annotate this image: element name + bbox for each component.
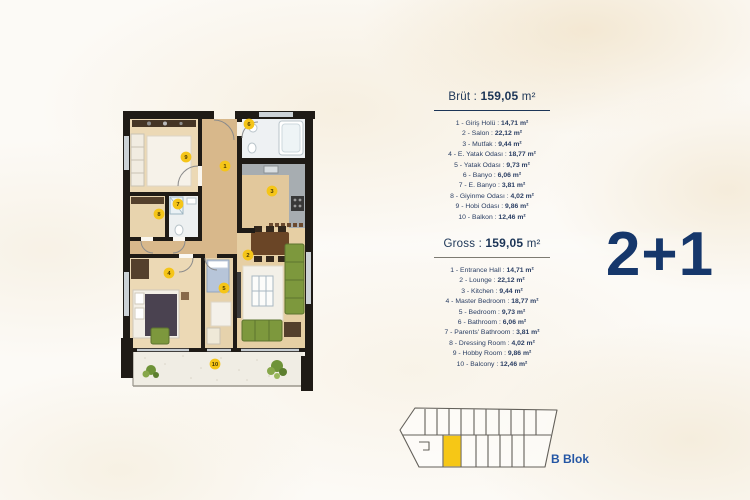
marker-10: 10 (210, 359, 221, 370)
brut-divider (434, 110, 550, 111)
marker-9: 9 (181, 152, 192, 163)
marker-2: 2 (243, 250, 254, 261)
block-highlight-unit (444, 436, 461, 467)
block-outline (400, 408, 557, 467)
marker-6: 6 (244, 119, 255, 130)
gross-heading: Gross : 159,05 m² (417, 236, 567, 250)
list-item: 5 - Bedroom : 9,73 m² (417, 308, 567, 318)
sofa-bottom (242, 320, 282, 341)
side-table (284, 322, 301, 337)
list-item: 10 - Balcony : 12,46 m² (417, 360, 567, 370)
list-item: 3 - Kitchen : 9,44 m² (417, 287, 567, 297)
svg-text:7: 7 (176, 202, 179, 208)
floor-plan: 1 2 3 4 5 6 7 8 9 10 (121, 106, 317, 392)
list-item: 2 - Salon : 22,12 m² (417, 129, 567, 139)
marker-3: 3 (267, 186, 278, 197)
dining-table (251, 232, 289, 255)
svg-text:10: 10 (212, 362, 218, 368)
block-label: B Blok (551, 452, 589, 466)
brut-heading: Brüt : 159,05 m² (417, 89, 567, 103)
list-item: 2 - Lounge : 22,12 m² (417, 276, 567, 286)
list-item: 9 - Hobby Room : 9,86 m² (417, 349, 567, 359)
list-item: 7 - Parents' Bathroom : 3,81 m² (417, 328, 567, 338)
list-item: 4 - Master Bedroom : 18,77 m² (417, 297, 567, 307)
marker-8: 8 (154, 209, 165, 220)
gross-room-list: 1 - Entrance Hall : 14,71 m² 2 - Lounge … (417, 266, 567, 370)
list-item: 6 - Banyo : 6,06 m² (417, 171, 567, 181)
unit-type-label: 2+1 (594, 219, 726, 290)
marker-4: 4 (164, 268, 175, 279)
floor-plan-svg: 1 2 3 4 5 6 7 8 9 10 (121, 106, 317, 392)
list-item: 8 - Dressing Room : 4,02 m² (417, 339, 567, 349)
tv-panel (237, 272, 241, 318)
list-item: 10 - Balkon : 12,46 m² (417, 213, 567, 223)
list-item: 9 - Hobi Odası : 9,86 m² (417, 202, 567, 212)
list-item: 5 - Yatak Odası : 9,73 m² (417, 161, 567, 171)
marker-7: 7 (173, 199, 184, 210)
list-item: 3 - Mutfak : 9,44 m² (417, 140, 567, 150)
block-diagram (392, 397, 588, 481)
list-item: 4 - E. Yatak Odası : 18,77 m² (417, 150, 567, 160)
list-item: 1 - Entrance Hall : 14,71 m² (417, 266, 567, 276)
marker-1: 1 (220, 161, 231, 172)
hall-floor (202, 119, 237, 258)
sofa-right (285, 244, 304, 314)
list-item: 6 - Bathroom : 6,06 m² (417, 318, 567, 328)
gross-section: Gross : 159,05 m² 1 - Entrance Hall : 14… (417, 236, 567, 370)
list-item: 8 - Giyinme Odası : 4,02 m² (417, 192, 567, 202)
svg-text:2: 2 (246, 253, 249, 259)
list-item: 1 - Giriş Holü : 14,71 m² (417, 119, 567, 129)
brut-room-list: 1 - Giriş Holü : 14,71 m² 2 - Salon : 22… (417, 119, 567, 223)
dressing-room-furniture (131, 197, 164, 204)
list-item: 7 - E. Banyo : 3,81 m² (417, 181, 567, 191)
brut-section: Brüt : 159,05 m² 1 - Giriş Holü : 14,71 … (417, 89, 567, 223)
marker-5: 5 (219, 283, 230, 294)
gross-divider (434, 257, 550, 258)
